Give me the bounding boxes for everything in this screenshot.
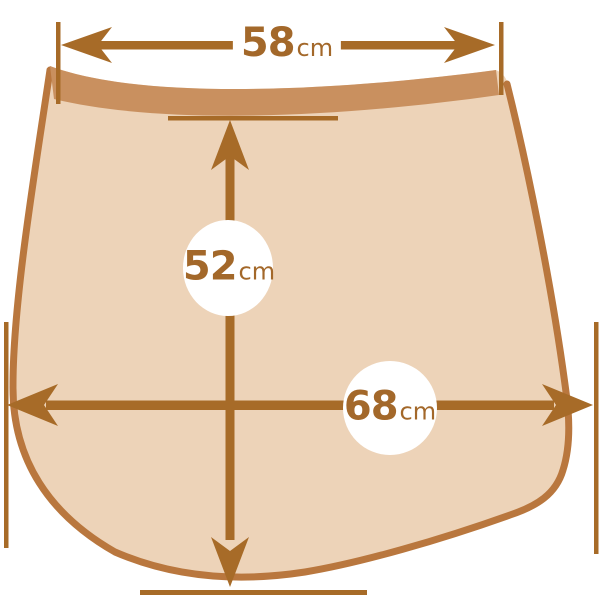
top-width-unit: cm <box>297 36 334 60</box>
top-right-tick <box>499 22 504 95</box>
height-value: 52 <box>183 246 237 286</box>
height-label: 52 cm <box>183 246 275 286</box>
top-left-tick <box>56 22 61 104</box>
bottom-width-value: 68 <box>344 386 398 426</box>
top-width-label: 58 cm <box>233 21 341 65</box>
height-unit: cm <box>239 259 276 283</box>
garment-shape <box>13 66 569 577</box>
bottom-arrow-line <box>46 401 554 411</box>
garment-diagram-canvas <box>0 0 600 600</box>
bottom-width-label: 68 cm <box>344 386 436 426</box>
bottom-width-unit: cm <box>400 399 437 423</box>
height-bottom-tick <box>140 590 367 595</box>
height-arrow-line <box>226 140 235 540</box>
bottom-right-tick <box>594 322 599 554</box>
top-width-value: 58 <box>241 23 295 63</box>
dimension-diagram: 58 cm 52 cm 68 cm <box>0 0 600 600</box>
height-top-tick <box>168 116 338 121</box>
bottom-left-tick <box>4 322 9 548</box>
